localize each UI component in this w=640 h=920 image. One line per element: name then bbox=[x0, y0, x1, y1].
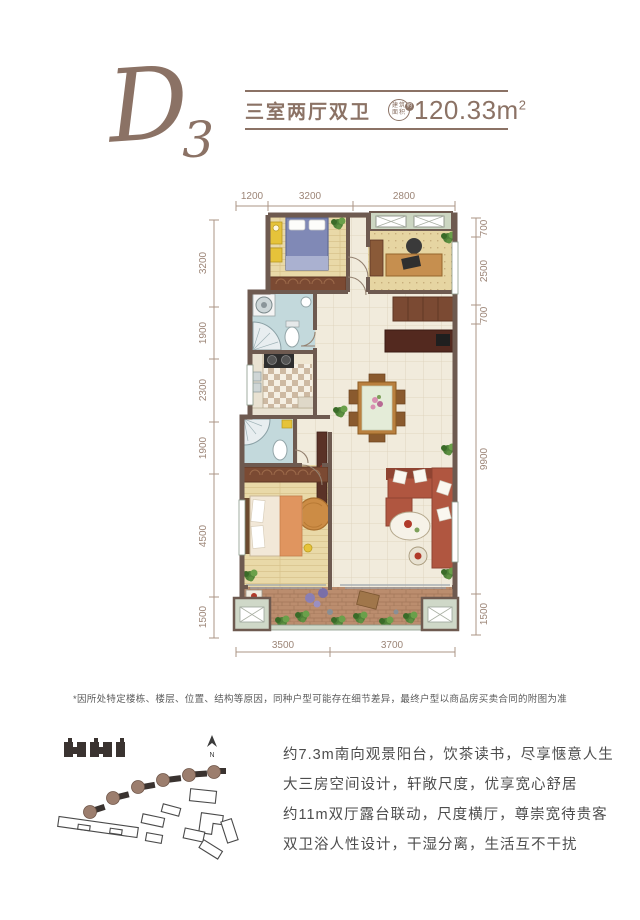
dim-right-2: 2500 bbox=[479, 259, 490, 282]
dim-right-3: 700 bbox=[479, 306, 490, 323]
area-value: 120.33m2 bbox=[414, 95, 526, 126]
master-window bbox=[239, 500, 245, 555]
toilet bbox=[285, 327, 299, 347]
area-approx-dot: 约 bbox=[405, 102, 414, 111]
north-label: N bbox=[209, 752, 214, 759]
area-badge-top: 建筑 bbox=[392, 103, 406, 110]
feature-line-3: 约11m双厅露台联动，尺度横厅，尊崇宽待贵客 bbox=[283, 800, 593, 830]
dim-left-3: 2300 bbox=[198, 378, 209, 401]
bay-window-left bbox=[234, 598, 270, 630]
area-badge-icon: 建筑 面积 约 bbox=[388, 99, 410, 121]
bay-window-right bbox=[422, 598, 458, 630]
feature-line-1: 约7.3m南向观景阳台，饮茶读书，尽享惬意人生 bbox=[283, 740, 593, 770]
dim-left-6: 1500 bbox=[198, 605, 209, 628]
north-arrow: N bbox=[207, 735, 217, 759]
study-window bbox=[452, 242, 458, 294]
dim-top-3: 2800 bbox=[393, 191, 416, 202]
plan-title-bar: 三室两厅双卫 建筑 面积 约 120.33m2 bbox=[245, 90, 508, 130]
feature-line-4: 双卫浴人性设计，干湿分离，生活互不干扰 bbox=[283, 830, 593, 860]
cabinet bbox=[370, 240, 383, 276]
kitchen-window bbox=[247, 365, 253, 405]
dim-right-4: 9900 bbox=[479, 447, 490, 470]
dim-right-1: 700 bbox=[479, 219, 490, 236]
layout-name: 三室两厅双卫 bbox=[245, 97, 371, 124]
toilet-2 bbox=[273, 440, 287, 460]
living-window bbox=[452, 502, 458, 562]
area-badge-bottom: 面积 bbox=[392, 110, 406, 117]
feature-list: 约7.3m南向观景阳台，饮茶读书，尽享惬意人生 大三房空间设计，轩敞尺度，优享宽… bbox=[283, 740, 593, 860]
dim-right-5: 1500 bbox=[479, 602, 490, 625]
dim-left-4: 1900 bbox=[198, 436, 209, 459]
dim-bottom-2: 3700 bbox=[381, 640, 404, 651]
desk-chair bbox=[406, 238, 422, 254]
dim-bottom-1: 3500 bbox=[272, 640, 295, 651]
dim-top-1: 1200 bbox=[241, 191, 264, 202]
dim-left-2: 1900 bbox=[198, 321, 209, 344]
outline-buildings bbox=[58, 789, 238, 859]
floor-plan: 1200 3200 2800 3500 3700 3200 1900 2300 … bbox=[190, 182, 500, 682]
dim-left-1: 3200 bbox=[198, 251, 209, 274]
site-map: N bbox=[50, 730, 245, 862]
disclaimer-text: *因所处特定楼栋、楼层、位置、结构等原因，同种户型可能存在细节差异，最终户型以商… bbox=[0, 691, 640, 705]
dim-top-2: 3200 bbox=[299, 191, 322, 202]
feature-line-2: 大三房空间设计，轩敞尺度，优享宽心舒居 bbox=[283, 770, 593, 800]
dim-left-5: 4500 bbox=[198, 524, 209, 547]
built-buildings bbox=[64, 738, 125, 757]
basin bbox=[301, 297, 311, 307]
unit-code-number: 3 bbox=[182, 111, 214, 169]
unit-code-letter: D bbox=[105, 52, 192, 157]
unit-logo: D3 bbox=[108, 55, 238, 170]
